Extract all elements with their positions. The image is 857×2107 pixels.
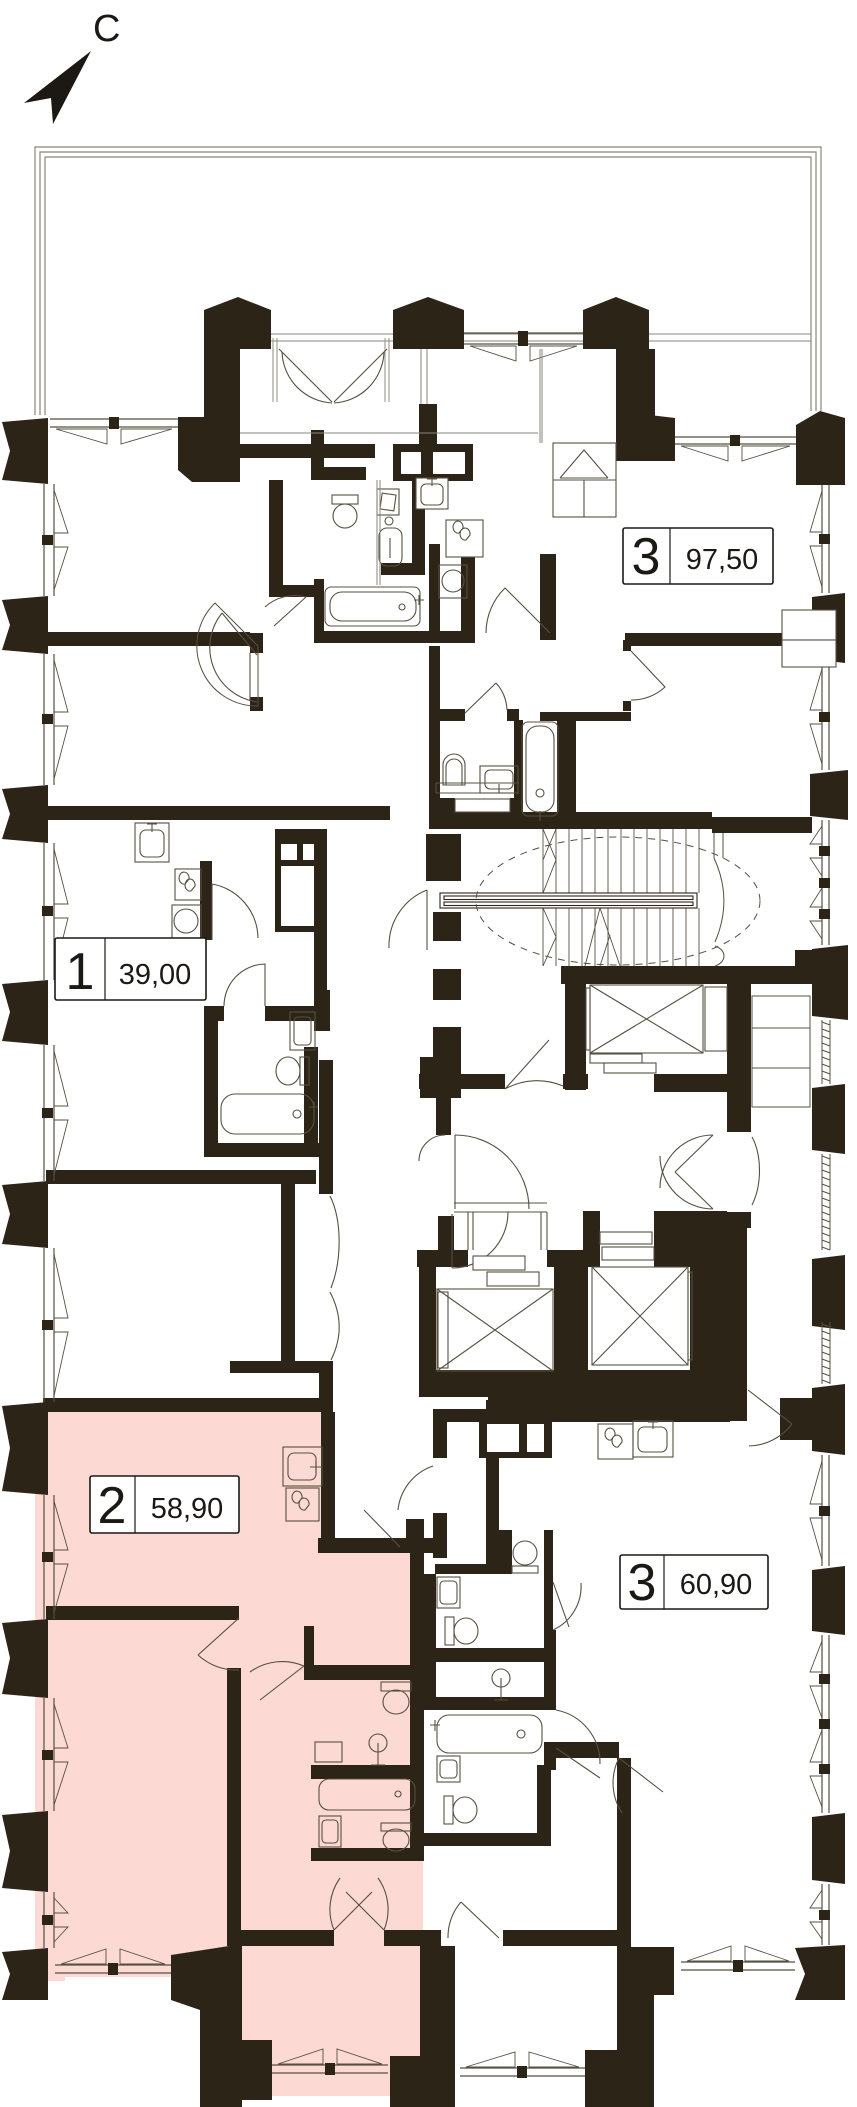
svg-text:3: 3	[632, 528, 661, 586]
svg-text:1: 1	[66, 943, 95, 1001]
svg-text:58,90: 58,90	[151, 1493, 224, 1525]
svg-text:97,50: 97,50	[686, 544, 759, 576]
svg-text:39,00: 39,00	[119, 959, 192, 991]
svg-text:С: С	[93, 8, 120, 50]
svg-text:3: 3	[628, 1554, 657, 1612]
svg-text:60,90: 60,90	[680, 1569, 753, 1601]
svg-text:2: 2	[98, 1477, 127, 1535]
